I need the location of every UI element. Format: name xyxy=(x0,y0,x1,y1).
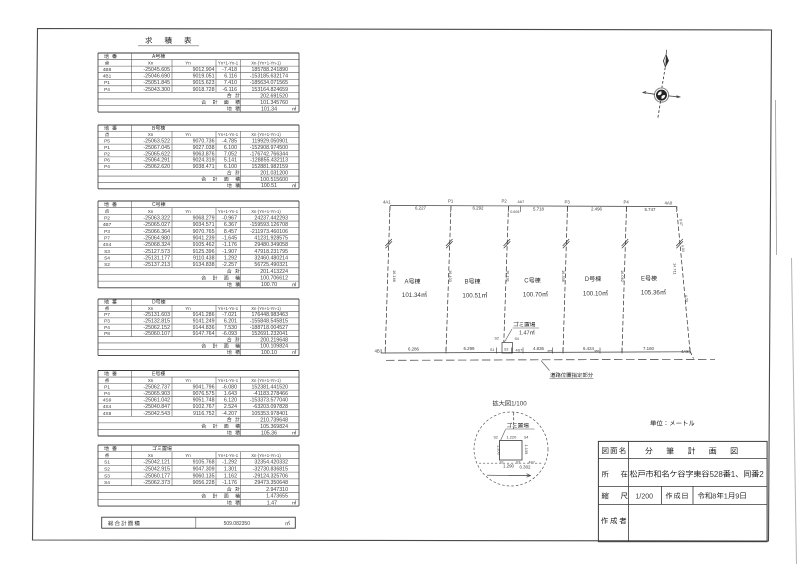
svg-text:7.052: 7.052 xyxy=(224,151,237,157)
svg-text:-25045.605: -25045.605 xyxy=(143,67,170,73)
svg-text:-25040.847: -25040.847 xyxy=(143,404,170,410)
svg-text:-25127.573: -25127.573 xyxy=(143,249,170,255)
svg-text:119929.050901: 119929.050901 xyxy=(252,139,288,145)
svg-text:6.292: 6.292 xyxy=(473,206,485,211)
svg-text:1/100: 1/100 xyxy=(511,401,527,408)
svg-text:9105.768: 9105.768 xyxy=(193,460,215,466)
svg-text:152381.441520: 152381.441520 xyxy=(252,385,289,391)
svg-text:-1.176: -1.176 xyxy=(222,242,237,248)
svg-text:S1: S1 xyxy=(104,460,110,466)
svg-text:4B3: 4B3 xyxy=(375,349,383,354)
svg-text:1.162: 1.162 xyxy=(224,473,237,479)
svg-text:Xn·(Yn+1-Yn-1): Xn·(Yn+1-Yn-1) xyxy=(251,132,281,137)
svg-text:Xn·(Yn+1-Yn-1): Xn·(Yn+1-Yn-1) xyxy=(251,378,281,383)
svg-text:6.116: 6.116 xyxy=(224,74,237,80)
svg-text:4B1: 4B1 xyxy=(103,74,112,80)
svg-text:-211973.460106: -211973.460106 xyxy=(250,229,288,235)
svg-text:9056.228: 9056.228 xyxy=(193,480,215,486)
svg-text:16.062: 16.062 xyxy=(620,270,625,282)
svg-text:1.47: 1.47 xyxy=(519,331,530,337)
svg-text:101.34: 101.34 xyxy=(261,106,277,112)
svg-text:100.10: 100.10 xyxy=(583,291,603,298)
svg-text:-6.080: -6.080 xyxy=(222,385,237,391)
svg-text:47918.231795: 47918.231795 xyxy=(254,249,288,255)
svg-text:-185634.071565: -185634.071565 xyxy=(250,80,288,86)
svg-text:S2: S2 xyxy=(104,467,110,473)
svg-text:-25062.620: -25062.620 xyxy=(143,164,170,170)
svg-text:105.369824: 105.369824 xyxy=(260,424,288,430)
svg-text:2.496: 2.496 xyxy=(591,207,603,212)
svg-text:E: E xyxy=(641,277,645,283)
svg-text:-155848.545815: -155848.545815 xyxy=(250,319,288,325)
svg-text:S4: S4 xyxy=(104,480,110,486)
svg-text:9125.396: 9125.396 xyxy=(193,249,215,255)
svg-text:-6.093: -6.093 xyxy=(222,331,237,337)
svg-text:201.413224: 201.413224 xyxy=(260,269,288,275)
svg-text:Xn·(Yn+1-Yn-1): Xn·(Yn+1-Yn-1) xyxy=(251,453,281,458)
svg-text:9012.904: 9012.904 xyxy=(193,67,215,73)
svg-text:Yn: Yn xyxy=(185,306,191,311)
svg-text:202.691520: 202.691520 xyxy=(260,93,288,99)
svg-text:-128855.432113: -128855.432113 xyxy=(250,158,288,164)
svg-text:4A8: 4A8 xyxy=(681,349,689,354)
svg-text:S4: S4 xyxy=(515,337,519,341)
svg-text:8.457: 8.457 xyxy=(224,229,237,235)
svg-text:152691.232041: 152691.232041 xyxy=(252,331,289,337)
svg-text:16.191: 16.191 xyxy=(505,270,510,282)
svg-text:Yn+1-Yn-1: Yn+1-Yn-1 xyxy=(218,61,239,66)
svg-text:Yn: Yn xyxy=(185,61,191,66)
svg-text:6.201: 6.201 xyxy=(224,319,237,325)
svg-text:-25065.622: -25065.622 xyxy=(143,151,170,157)
svg-text:100.70: 100.70 xyxy=(523,292,543,299)
svg-text:4B8: 4B8 xyxy=(103,67,112,73)
svg-text:-25067.045: -25067.045 xyxy=(143,145,170,151)
svg-text:Yn: Yn xyxy=(185,132,191,137)
svg-text:C: C xyxy=(524,279,529,285)
svg-text:100.109824: 100.109824 xyxy=(260,344,288,350)
svg-text:-25042.543: -25042.543 xyxy=(143,411,170,417)
svg-text:P2: P2 xyxy=(104,215,110,221)
svg-text:Xn·(Yn+1-Yn-1): Xn·(Yn+1-Yn-1) xyxy=(251,209,281,214)
svg-text:1.139: 1.139 xyxy=(524,445,529,455)
svg-text:9102.767: 9102.767 xyxy=(193,404,215,410)
svg-text:9070.736: 9070.736 xyxy=(193,139,215,145)
svg-text:9147.764: 9147.764 xyxy=(193,331,215,337)
svg-text:153164.824659: 153164.824659 xyxy=(252,87,289,93)
svg-text:C: C xyxy=(152,202,156,208)
svg-text:-25131.603: -25131.603 xyxy=(143,312,170,318)
svg-text:4S4: 4S4 xyxy=(103,404,112,410)
svg-text:Yn+1-Yn-1: Yn+1-Yn-1 xyxy=(218,378,239,383)
svg-text:-2.257: -2.257 xyxy=(222,262,237,268)
svg-text:1.220: 1.220 xyxy=(507,434,518,439)
svg-text:4B7: 4B7 xyxy=(103,222,112,228)
svg-text:9041.796: 9041.796 xyxy=(193,385,215,391)
svg-text:9141.286: 9141.286 xyxy=(193,312,215,318)
svg-text:9038.471: 9038.471 xyxy=(193,164,215,170)
svg-text:D: D xyxy=(152,300,156,306)
svg-text:-1.907: -1.907 xyxy=(222,249,237,255)
svg-text:2.947310: 2.947310 xyxy=(266,487,288,493)
svg-text:-25066.364: -25066.364 xyxy=(143,229,170,235)
svg-text:1.292: 1.292 xyxy=(224,256,237,262)
svg-text:Yn+1-Yn-1: Yn+1-Yn-1 xyxy=(218,306,239,311)
svg-text:-25064.291: -25064.291 xyxy=(143,158,170,164)
svg-text:P1: P1 xyxy=(448,199,454,204)
svg-text:9051.748: 9051.748 xyxy=(193,398,215,404)
svg-text:-176742.766344: -176742.766344 xyxy=(250,151,288,157)
svg-text:7.410: 7.410 xyxy=(224,80,237,86)
svg-text:100.51: 100.51 xyxy=(261,183,277,189)
svg-text:-4.785: -4.785 xyxy=(222,139,237,145)
svg-text:S3: S3 xyxy=(104,249,110,255)
svg-text:Xn·(Yn+1-Yn-1): Xn·(Yn+1-Yn-1) xyxy=(251,306,281,311)
svg-text:185788.241890: 185788.241890 xyxy=(252,67,289,73)
svg-text:Xn: Xn xyxy=(148,209,154,214)
svg-text:A: A xyxy=(405,280,409,286)
svg-text:6.120: 6.120 xyxy=(224,398,237,404)
svg-text:P6: P6 xyxy=(595,348,601,353)
svg-text:P8: P8 xyxy=(104,331,110,337)
svg-text:-25051.845: -25051.845 xyxy=(143,80,170,86)
svg-text:-25060.177: -25060.177 xyxy=(143,473,170,479)
svg-text:-25068.324: -25068.324 xyxy=(143,242,170,248)
svg-text:9116.752: 9116.752 xyxy=(193,411,215,417)
svg-text:1.643: 1.643 xyxy=(224,391,237,397)
svg-text:Xn: Xn xyxy=(148,378,154,383)
svg-text:29473.350648: 29473.350648 xyxy=(254,480,288,486)
svg-text:-25063.522: -25063.522 xyxy=(143,139,170,145)
svg-text:P1: P1 xyxy=(104,385,110,391)
svg-text:Xn: Xn xyxy=(148,453,154,458)
svg-text:16.356: 16.356 xyxy=(561,270,566,282)
svg-text:1: 1 xyxy=(731,470,736,479)
svg-text:6.227: 6.227 xyxy=(415,206,427,211)
svg-text:P7: P7 xyxy=(104,312,110,318)
svg-text:-25063.322: -25063.322 xyxy=(143,215,170,221)
svg-text:-25046.690: -25046.690 xyxy=(143,74,170,80)
svg-text:9076.575: 9076.575 xyxy=(193,391,215,397)
svg-text:-63203.097828: -63203.097828 xyxy=(253,404,288,410)
svg-text:9068.279: 9068.279 xyxy=(193,215,215,221)
svg-text:P6: P6 xyxy=(104,158,110,164)
svg-text:Yn+1-Yn-1: Yn+1-Yn-1 xyxy=(218,209,239,214)
svg-text:S1: S1 xyxy=(500,460,504,464)
svg-text:200.219648: 200.219648 xyxy=(260,337,288,343)
svg-text:32354.420332: 32354.420332 xyxy=(254,460,288,466)
svg-text:2: 2 xyxy=(759,470,764,479)
svg-text:9141.249: 9141.249 xyxy=(193,319,215,325)
svg-text:-25062.737: -25062.737 xyxy=(143,385,170,391)
svg-text:B: B xyxy=(465,280,469,286)
svg-text:P4: P4 xyxy=(104,164,110,170)
svg-text:Xn: Xn xyxy=(148,306,154,311)
svg-text:-25132.815: -25132.815 xyxy=(143,319,170,325)
svg-text:-153185.632174: -153185.632174 xyxy=(250,74,288,80)
svg-text:8: 8 xyxy=(712,491,716,500)
svg-text:9: 9 xyxy=(735,491,739,500)
svg-text:-25131.177: -25131.177 xyxy=(143,256,170,262)
svg-text:2.524: 2.524 xyxy=(224,404,237,410)
svg-text:1.473655: 1.473655 xyxy=(266,494,288,500)
svg-text:7.160: 7.160 xyxy=(643,346,655,351)
svg-text:-152908.974500: -152908.974500 xyxy=(250,145,288,151)
svg-text:-7.418: -7.418 xyxy=(222,67,237,73)
svg-text:29480.349058: 29480.349058 xyxy=(254,242,288,248)
svg-text:14.711: 14.711 xyxy=(673,263,678,275)
svg-text:D: D xyxy=(585,277,590,283)
svg-text:4A1: 4A1 xyxy=(383,200,391,205)
svg-text:5.747: 5.747 xyxy=(645,207,657,212)
svg-text:-32730.836815: -32730.836815 xyxy=(253,467,288,473)
svg-text:9018.728: 9018.728 xyxy=(193,87,215,93)
svg-text:S4: S4 xyxy=(524,436,528,440)
svg-text:201.031200: 201.031200 xyxy=(260,170,288,176)
svg-text:100.706612: 100.706612 xyxy=(260,276,288,282)
svg-text:4S4: 4S4 xyxy=(103,242,112,248)
svg-text:-25042.121: -25042.121 xyxy=(143,460,170,466)
svg-text:P3: P3 xyxy=(565,199,571,204)
svg-text:-41183.278466: -41183.278466 xyxy=(253,391,288,397)
svg-text:56725.490321: 56725.490321 xyxy=(254,262,288,268)
svg-text:-0.967: -0.967 xyxy=(222,215,237,221)
svg-text:S1: S1 xyxy=(490,348,494,352)
svg-text:-1.292: -1.292 xyxy=(222,460,237,466)
svg-text:9034.571: 9034.571 xyxy=(193,222,215,228)
svg-text:9134.838: 9134.838 xyxy=(193,262,215,268)
svg-text:-29124.325706: -29124.325706 xyxy=(253,473,288,479)
svg-text:-25062.373: -25062.373 xyxy=(143,480,170,486)
svg-text:6.286: 6.286 xyxy=(408,347,420,352)
svg-text:9063.876: 9063.876 xyxy=(193,151,215,157)
svg-text:0.691: 0.691 xyxy=(510,210,520,214)
svg-text:1.301: 1.301 xyxy=(224,467,237,473)
svg-text:9110.438: 9110.438 xyxy=(193,256,215,262)
svg-text:P2: P2 xyxy=(104,151,110,157)
svg-text:-25065.903: -25065.903 xyxy=(143,391,170,397)
svg-text:509.082350: 509.082350 xyxy=(224,521,251,527)
svg-text:S2: S2 xyxy=(495,337,499,341)
svg-text:-25043.300: -25043.300 xyxy=(143,87,170,93)
svg-text:4S9: 4S9 xyxy=(103,398,112,404)
svg-text:-25064.980: -25064.980 xyxy=(143,235,170,241)
svg-text:5.718: 5.718 xyxy=(533,207,545,212)
svg-text:-1.176: -1.176 xyxy=(222,480,237,486)
svg-text:1.200: 1.200 xyxy=(496,445,501,456)
svg-text:P7: P7 xyxy=(104,235,110,241)
svg-text:P1: P1 xyxy=(104,80,110,86)
svg-text:1/200: 1/200 xyxy=(636,493,654,500)
svg-text:176448.983463: 176448.983463 xyxy=(252,312,289,318)
svg-text:P4: P4 xyxy=(624,200,630,205)
svg-text:4S8: 4S8 xyxy=(103,411,112,417)
svg-text:6.299: 6.299 xyxy=(464,346,476,351)
svg-text:Xn: Xn xyxy=(148,61,154,66)
svg-text:4A0: 4A0 xyxy=(665,200,673,205)
svg-text:7.530: 7.530 xyxy=(224,325,237,331)
svg-text:100.10: 100.10 xyxy=(261,350,277,356)
svg-text:P4: P4 xyxy=(104,391,110,397)
svg-text:16.168: 16.168 xyxy=(392,270,397,282)
svg-text:1.290: 1.290 xyxy=(503,464,515,469)
svg-text:210.739648: 210.739648 xyxy=(260,417,288,423)
svg-text:Yn+1-Yn-1: Yn+1-Yn-1 xyxy=(218,132,239,137)
svg-text:105353.978401: 105353.978401 xyxy=(252,411,289,417)
svg-text:101.34: 101.34 xyxy=(402,292,422,299)
svg-text:9027.038: 9027.038 xyxy=(193,145,215,151)
svg-text:-25042.915: -25042.915 xyxy=(143,467,170,473)
svg-text:P3: P3 xyxy=(104,229,110,235)
svg-text:16.403: 16.403 xyxy=(448,270,453,282)
svg-text:-159593.126708: -159593.126708 xyxy=(250,222,288,228)
svg-text:105.36: 105.36 xyxy=(261,430,277,436)
svg-text:100.70: 100.70 xyxy=(261,282,277,288)
svg-text:-4.207: -4.207 xyxy=(222,411,237,417)
svg-text:Yn: Yn xyxy=(185,209,191,214)
svg-text:9060.135: 9060.135 xyxy=(193,473,215,479)
svg-text:P2: P2 xyxy=(502,199,508,204)
svg-text:S3: S3 xyxy=(504,348,508,352)
svg-text:101.345760: 101.345760 xyxy=(260,100,288,106)
svg-text:105.36: 105.36 xyxy=(641,290,661,297)
svg-text:P3: P3 xyxy=(104,319,110,325)
svg-text:32460.480214: 32460.480214 xyxy=(254,256,288,262)
svg-text:-1.645: -1.645 xyxy=(222,235,237,241)
svg-text:P1: P1 xyxy=(104,145,110,151)
svg-text:Yn: Yn xyxy=(185,453,191,458)
svg-text:P4: P4 xyxy=(104,87,110,93)
svg-text:Xn·(Yn+1-Yn-1): Xn·(Yn+1-Yn-1) xyxy=(251,61,281,66)
svg-text:S2: S2 xyxy=(494,436,498,440)
svg-text:6.424: 6.424 xyxy=(583,346,595,351)
svg-text:-25137.213: -25137.213 xyxy=(143,262,170,268)
svg-text:0.302: 0.302 xyxy=(520,465,532,470)
svg-text:6.100: 6.100 xyxy=(224,145,237,151)
svg-text:-188718.004527: -188718.004527 xyxy=(250,325,288,331)
svg-text:100.515600: 100.515600 xyxy=(260,177,288,183)
svg-text:6.367: 6.367 xyxy=(224,222,237,228)
svg-text:P5: P5 xyxy=(548,348,554,353)
svg-text:Yn: Yn xyxy=(185,378,191,383)
svg-text:5.141: 5.141 xyxy=(224,158,237,164)
svg-text:-25061.042: -25061.042 xyxy=(143,398,170,404)
svg-text:P4: P4 xyxy=(104,325,110,331)
svg-text:S3: S3 xyxy=(104,473,110,479)
svg-text:S2: S2 xyxy=(104,262,110,268)
svg-text:9019.051: 9019.051 xyxy=(193,74,215,80)
svg-text:9070.765: 9070.765 xyxy=(193,229,215,235)
svg-text:P5: P5 xyxy=(104,139,110,145)
svg-text:4S7: 4S7 xyxy=(529,460,535,464)
svg-text:24237.442293: 24237.442293 xyxy=(254,215,288,221)
svg-text:4.836: 4.836 xyxy=(533,346,545,351)
svg-text:Xn: Xn xyxy=(148,132,154,137)
svg-text:100.51: 100.51 xyxy=(462,293,482,300)
svg-text:S4: S4 xyxy=(104,256,110,262)
svg-text:528: 528 xyxy=(710,470,724,479)
svg-text:-25065.027: -25065.027 xyxy=(143,222,170,228)
svg-text:-153373.577040: -153373.577040 xyxy=(250,398,288,404)
svg-text:9041.239: 9041.239 xyxy=(193,235,215,241)
svg-text:9144.836: 9144.836 xyxy=(193,325,215,331)
svg-text:S3: S3 xyxy=(516,460,520,464)
svg-text:1: 1 xyxy=(724,491,728,500)
svg-text:Yn+1-Yn-1: Yn+1-Yn-1 xyxy=(218,453,239,458)
svg-text:41231.928575: 41231.928575 xyxy=(254,235,288,241)
svg-text:-6.116: -6.116 xyxy=(223,87,238,93)
svg-text:1.47: 1.47 xyxy=(267,500,277,506)
svg-text:-25060.107: -25060.107 xyxy=(143,331,170,337)
svg-text:-25062.152: -25062.152 xyxy=(143,325,170,331)
svg-text:-7.021: -7.021 xyxy=(222,312,237,318)
svg-text:9047.309: 9047.309 xyxy=(193,467,215,473)
svg-text:9105.462: 9105.462 xyxy=(193,242,215,248)
svg-text:9024.319: 9024.319 xyxy=(193,158,215,164)
svg-text:4S7: 4S7 xyxy=(516,349,523,353)
svg-text:4A7: 4A7 xyxy=(518,200,525,204)
svg-text:9015.623: 9015.623 xyxy=(193,80,215,86)
svg-text:152881.982159: 152881.982159 xyxy=(252,164,289,170)
svg-text:6.100: 6.100 xyxy=(224,164,237,170)
